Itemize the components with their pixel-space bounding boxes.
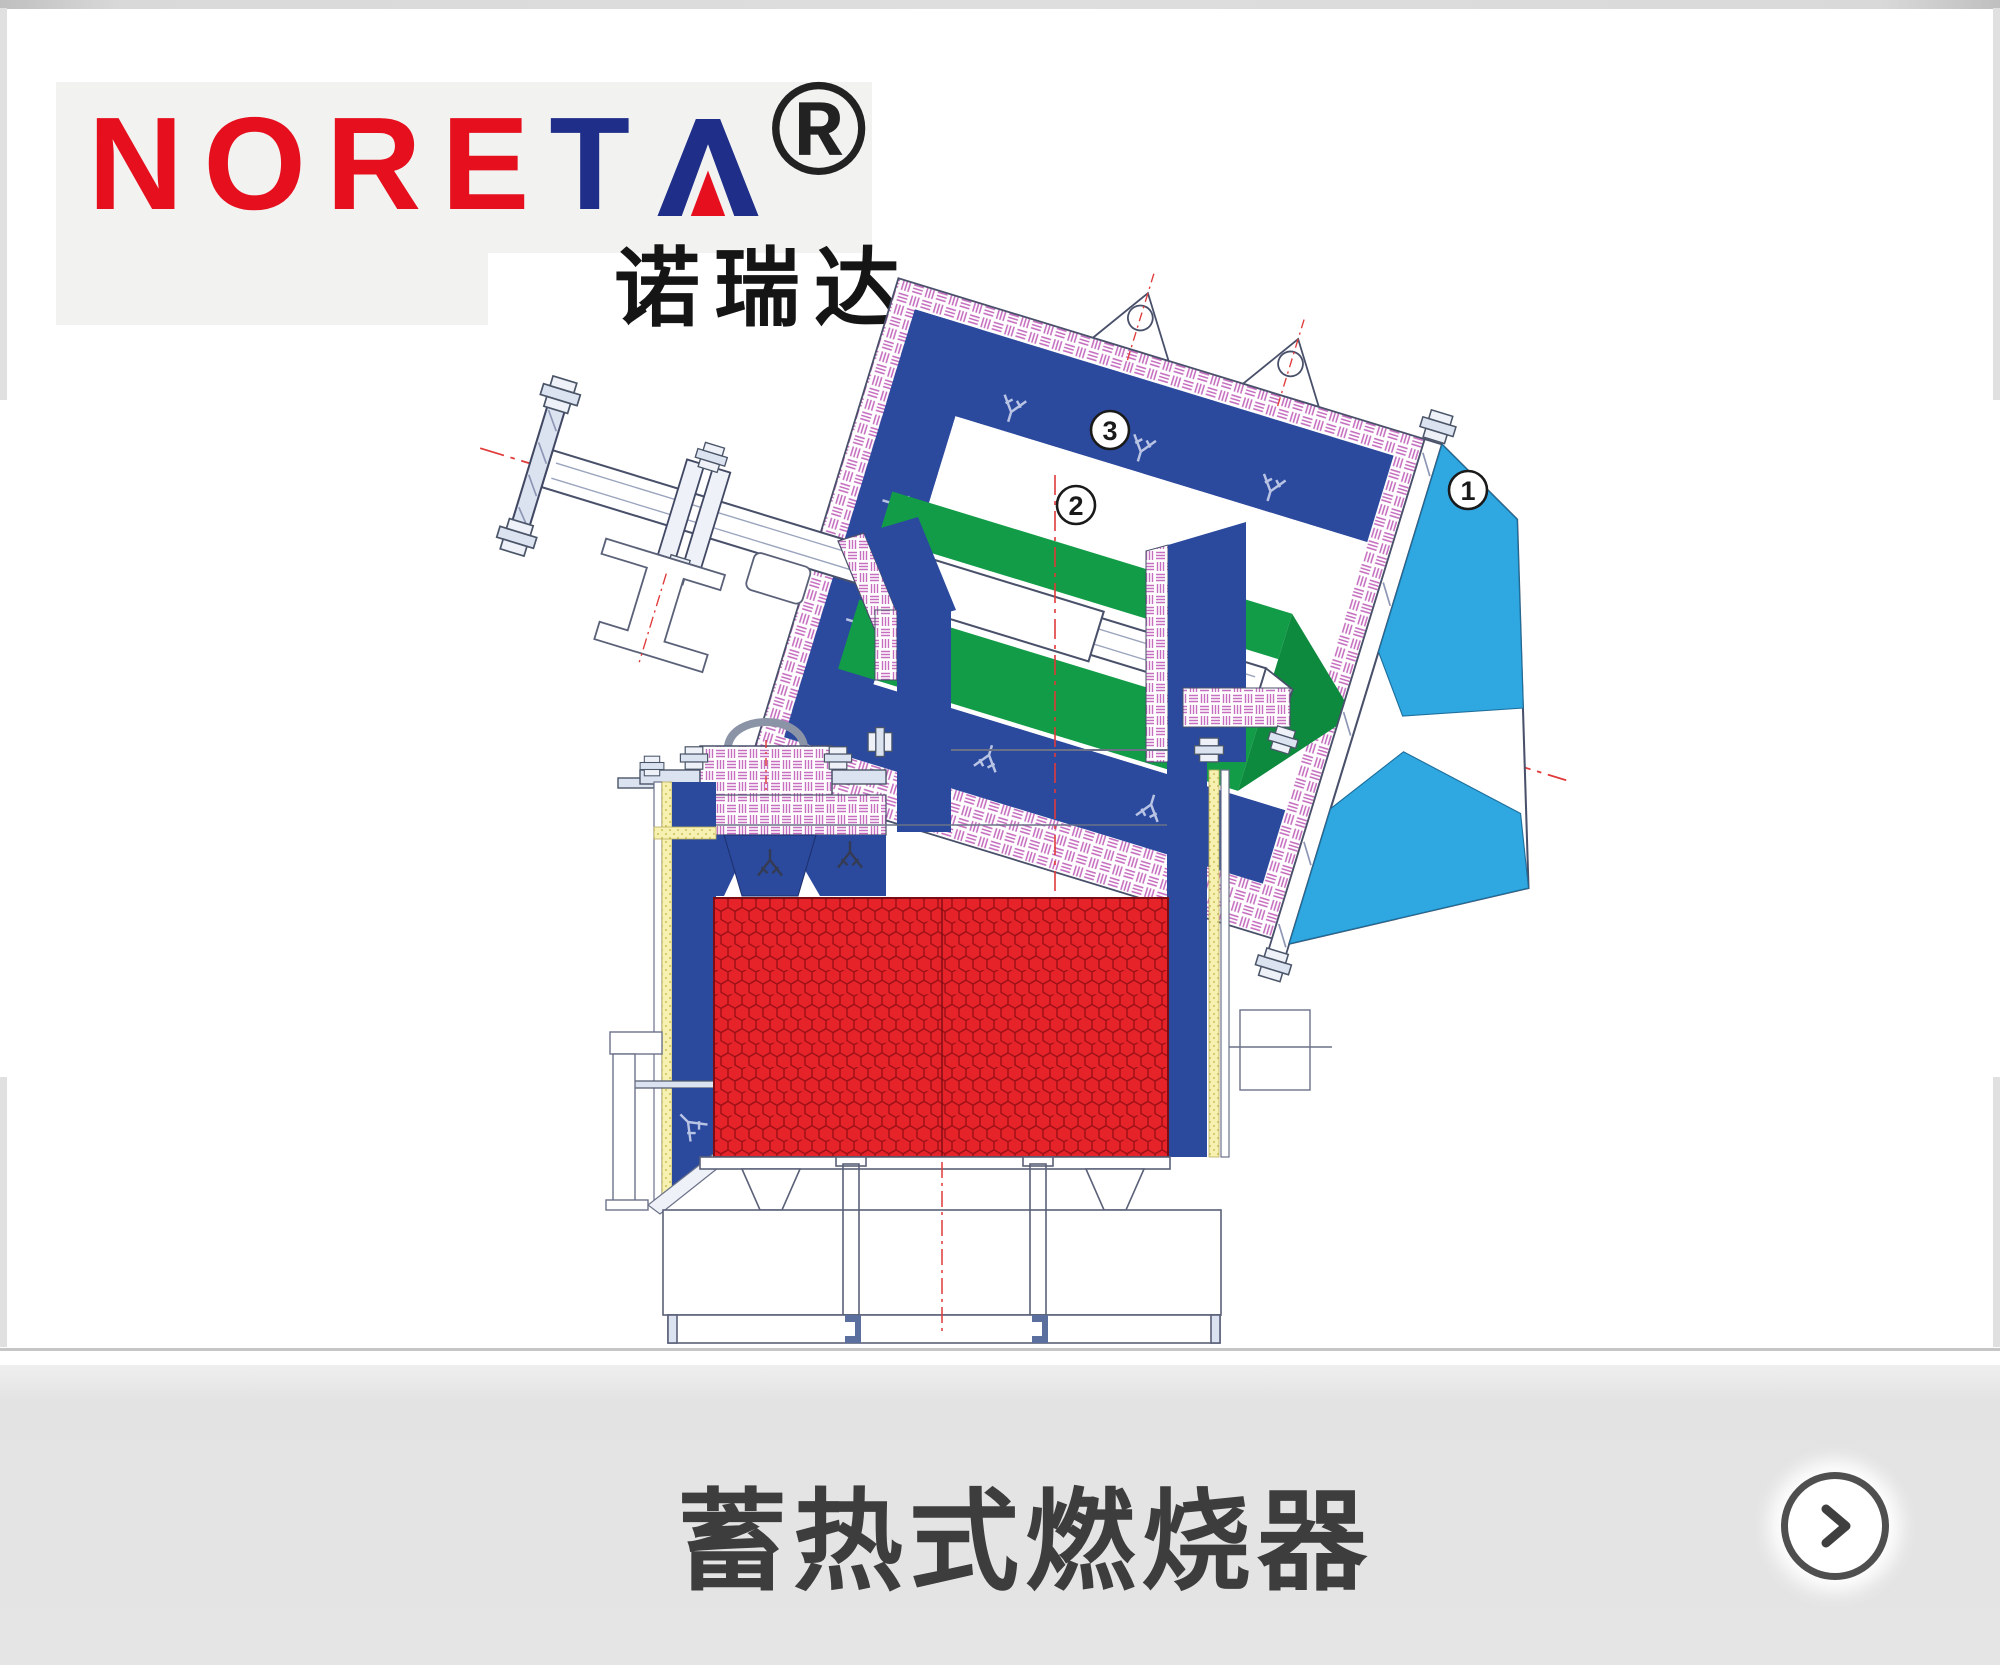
chevron-right-icon xyxy=(1808,1499,1862,1553)
svg-text:3: 3 xyxy=(1102,416,1117,446)
honeycomb-media xyxy=(714,898,1168,1157)
svg-text:1: 1 xyxy=(1460,476,1475,506)
right-wall-insulation xyxy=(1209,770,1219,1157)
callout-2: 2 xyxy=(1057,486,1095,524)
right-wall xyxy=(1167,762,1207,1157)
callout-1: 1 xyxy=(1449,471,1487,509)
left-wall-insulation xyxy=(662,782,672,1203)
svg-text:2: 2 xyxy=(1068,491,1083,521)
carousel-slide[interactable]: NORE T A ® 诺瑞达 xyxy=(0,0,2000,1665)
lance-support-bracket xyxy=(577,539,731,672)
base-frame xyxy=(663,1157,1221,1343)
callout-3: 3 xyxy=(1091,411,1129,449)
next-slide-button[interactable] xyxy=(1781,1472,1889,1580)
slide-title: 蓄热式燃烧器 xyxy=(0,1452,2000,1612)
